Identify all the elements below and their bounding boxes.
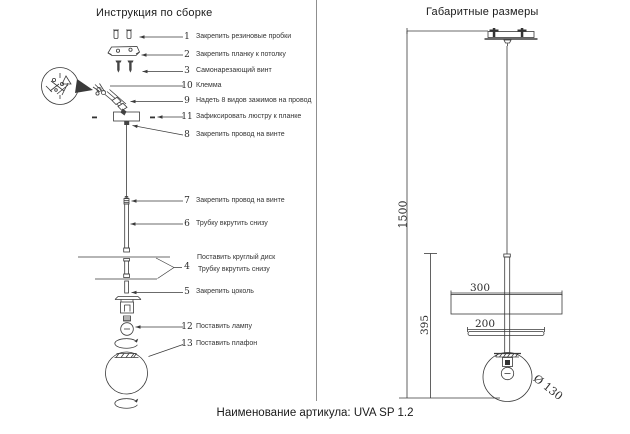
- large-disk-drawing: [451, 291, 562, 315]
- callout-number: 7: [181, 196, 193, 206]
- disk-section-drawing: [78, 257, 170, 279]
- article-name: Наименование артикула: UVA SP 1.2: [0, 407, 630, 419]
- callout-number: 13: [181, 339, 193, 349]
- callout-6: 6Трубку вкрутить снизу: [181, 219, 268, 229]
- callout-label: Самонарезающий винт: [196, 66, 272, 76]
- callout-label: Поставить круглый диск: [197, 253, 275, 263]
- callout-4-line1: Поставить круглый диск: [197, 253, 275, 263]
- callout-label: Поставить плафон: [196, 339, 257, 349]
- lower-tube-drawing: [125, 281, 129, 293]
- left-panel-title: Инструкция по сборке: [96, 7, 213, 19]
- panel-divider: [316, 0, 317, 401]
- dimension-height-total: 1500: [397, 200, 410, 230]
- callout-number: 2: [181, 50, 193, 60]
- dimensions-diagram: [399, 28, 562, 402]
- callout-label: Закрепить резиновые пробки: [196, 32, 291, 42]
- ceiling-bracket-drawing: [108, 47, 140, 56]
- rod-drawing: [504, 254, 511, 353]
- instruction-sheet: Инструкция по сборке Габаритные размеры …: [0, 0, 630, 434]
- callout-5: 5Закрепить цоколь: [181, 287, 254, 297]
- dimension-height-fixture: 395: [419, 311, 431, 339]
- callout-3: 3Самонарезающий винт: [181, 66, 272, 76]
- callout-number: 3: [181, 66, 193, 76]
- callout-label: Закрепить провод на винте: [196, 196, 285, 206]
- callout-label: Закрепить цоколь: [196, 287, 254, 297]
- clamp-assembly-drawing: [93, 84, 127, 116]
- callout-7: 7Закрепить провод на винте: [181, 196, 285, 206]
- callout-4-number: 4: [181, 262, 193, 272]
- ceiling-mount-drawing: [485, 28, 538, 46]
- callout-label: Поставить лампу: [196, 322, 252, 332]
- callout-number: 10: [181, 81, 193, 91]
- assembly-diagram: [42, 30, 184, 408]
- socket-drawing: [115, 297, 141, 314]
- callout-number: 5: [181, 287, 193, 297]
- dimension-disk-small: 200: [471, 318, 499, 330]
- callout-13: 13Поставить плафон: [181, 339, 257, 349]
- callout-10: 10Клемма: [181, 81, 222, 91]
- callout-4-line2: Трубку вкрутить снизу: [198, 265, 270, 275]
- rotate-arrow-top: [115, 339, 138, 349]
- callout-1: 1Закрепить резиновые пробки: [181, 32, 291, 42]
- screws-drawing: [116, 61, 134, 73]
- bulb-drawing: [121, 316, 134, 335]
- rubber-plugs-drawing: [113, 30, 132, 39]
- callout-number: 6: [181, 219, 193, 229]
- dimension-lines: [399, 28, 500, 398]
- upper-tube-drawing: [124, 204, 130, 252]
- callout-number: 8: [181, 130, 193, 140]
- callout-number: 1: [181, 32, 193, 42]
- diagram-canvas: [0, 0, 630, 434]
- callout-8: 8Закрепить провод на винте: [181, 130, 285, 140]
- callout-label: Трубку вкрутить снизу: [196, 219, 268, 229]
- callout-label: Закрепить провод на винте: [196, 130, 285, 140]
- callout-2: 2Закрепить планку к потолку: [181, 50, 286, 60]
- wiring-detail-circle: [42, 68, 94, 105]
- callout-number: 9: [181, 96, 193, 106]
- sphere-drawing: [106, 352, 148, 394]
- callout-label: Трубку вкрутить снизу: [198, 265, 270, 275]
- callout-label: Надеть 8 видов зажимов на провод: [196, 96, 311, 106]
- callout-12: 12Поставить лампу: [181, 322, 252, 332]
- leader-lines: [110, 35, 183, 356]
- callout-number: 4: [181, 262, 193, 272]
- callout-9: 9Надеть 8 видов зажимов на провод: [181, 96, 311, 106]
- callout-number: 11: [181, 112, 193, 122]
- dimension-disk-large: 300: [466, 282, 494, 294]
- sphere-side-drawing: [483, 353, 532, 402]
- callout-11: 11Зафиксировать люстру к планке: [181, 112, 301, 122]
- right-panel-title: Габаритные размеры: [426, 6, 539, 18]
- callout-label: Закрепить планку к потолку: [196, 50, 286, 60]
- callout-number: 12: [181, 322, 193, 332]
- callout-label: Зафиксировать люстру к планке: [196, 112, 301, 122]
- callout-label: Клемма: [196, 81, 222, 91]
